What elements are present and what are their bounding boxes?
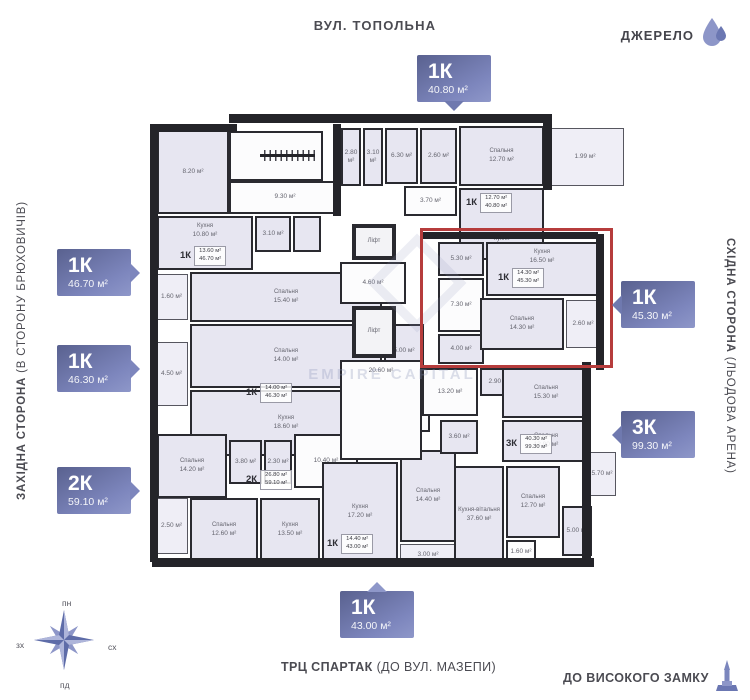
room-area-label: 3.60 м² xyxy=(448,433,469,441)
room-area-label: 3.70 м² xyxy=(420,197,441,205)
room-area-label: 4.50 м² xyxy=(161,370,182,378)
compass-rose: пн пд зх сх xyxy=(12,596,116,692)
room-name-label: Спальня xyxy=(274,348,298,356)
room-area-label: 2.50 м² xyxy=(161,522,182,530)
room-area-label: 3.80 м² xyxy=(235,458,256,466)
room: 2.60 м² xyxy=(420,128,457,184)
room-area-label: 5.00 м² xyxy=(393,347,414,355)
room-area-label: 37.60 м² xyxy=(467,515,492,523)
room: 3.10 м² xyxy=(255,216,291,252)
room-name-label: Кухня xyxy=(197,223,213,231)
room-area-label: 1.60 м² xyxy=(161,293,182,301)
room: 17.00 м² xyxy=(229,131,323,181)
compass-west-label: зх xyxy=(16,640,24,650)
badge-1k-45-30[interactable]: 1К 45.30 м² xyxy=(621,281,695,328)
room-area-label: 8.20 м² xyxy=(182,168,203,176)
room: 6.30 м² xyxy=(385,128,418,184)
room xyxy=(293,216,321,252)
room-спальня: Спальня12.60 м² xyxy=(190,498,258,562)
floorplan-page: ВУЛ. ТОПОЛЬНА ДЖЕРЕЛО ЗАХІДНА СТОРОНА (В… xyxy=(0,0,750,700)
apartment-rooms-label: 1К xyxy=(180,250,191,261)
room-area-label: 13.50 м² xyxy=(278,530,303,538)
room-area-label: 1.60 м² xyxy=(510,548,531,556)
room-area-label: 17.00 м² xyxy=(264,152,289,160)
room: 5.70 м² xyxy=(588,452,616,496)
room-area-label: 14.20 м² xyxy=(180,466,205,474)
room-area-label: 12.70 м² xyxy=(489,156,514,164)
apartment-areas-box: 40.30 м²99.30 м² xyxy=(520,434,552,454)
compass-south-label: пд xyxy=(60,680,70,690)
room-ліфт: Ліфт xyxy=(352,224,396,260)
room: 4.60 м² xyxy=(340,262,406,304)
room-area-label: 2.80 м² xyxy=(343,149,359,165)
room-area-label: 14.00 м² xyxy=(274,356,299,364)
apartment-tag[interactable]: 1К12.70 м²40.80 м² xyxy=(466,193,512,213)
apartment-rooms-label: 3К xyxy=(506,438,517,449)
badge-1k-46-70[interactable]: 1К 46.70 м² xyxy=(57,249,131,296)
room-area-label: 1.99 м² xyxy=(574,153,595,161)
room-area-label: 12.60 м² xyxy=(212,530,237,538)
room-area-label: 17.20 м² xyxy=(348,512,373,520)
room-area-label: 13.20 м² xyxy=(438,388,463,396)
room-ліфт: Ліфт xyxy=(352,306,396,358)
room-name-label: Кухня xyxy=(352,504,368,512)
compass-north-label: пн xyxy=(62,598,71,608)
room: 3.70 м² xyxy=(404,186,457,216)
room-area-label: 4.60 м² xyxy=(362,279,383,287)
room: 13.20 м² xyxy=(422,368,478,416)
room: 9.30 м² xyxy=(229,181,341,214)
apartment-areas-box: 26.80 м²59.10 м² xyxy=(260,470,292,490)
room: 2.50 м² xyxy=(155,498,188,554)
room: 4.50 м² xyxy=(155,342,188,406)
room-area-label: 15.40 м² xyxy=(274,297,299,305)
room-area-label: 9.30 м² xyxy=(274,193,295,201)
room-area-label: 20.60 м² xyxy=(369,367,394,375)
room-name-label: Спальня xyxy=(416,488,440,496)
wall-segment xyxy=(582,362,591,562)
apartment-rooms-label: 1К xyxy=(466,197,477,208)
selected-apartment-outline[interactable] xyxy=(420,228,613,368)
room-кухня-вітальня: Кухня-вітальня37.60 м² xyxy=(454,466,504,564)
apartment-tag[interactable]: 1К14.00 м²46.30 м² xyxy=(246,383,292,403)
room-кухня: Кухня13.50 м² xyxy=(260,498,320,562)
badge-1k-46-30[interactable]: 1К 46.30 м² xyxy=(57,345,131,392)
badge-1k-40-80[interactable]: 1К 40.80 м² xyxy=(417,55,491,102)
apartment-areas-box: 12.70 м²40.80 м² xyxy=(480,193,512,213)
wall-segment xyxy=(333,124,341,216)
room-area-label: 2.30 м² xyxy=(267,458,288,466)
room-name-label: Спальня xyxy=(180,458,204,466)
wall-segment xyxy=(229,114,545,123)
room-area-label: 18.60 м² xyxy=(274,423,299,431)
apartment-tag[interactable]: 2К26.80 м²59.10 м² xyxy=(246,470,292,490)
room-спальня: Спальня15.30 м² xyxy=(502,368,590,418)
wall-segment xyxy=(150,124,237,132)
wall-segment xyxy=(543,114,552,190)
apartment-areas-box: 14.00 м²46.30 м² xyxy=(260,383,292,403)
compass-east-label: сх xyxy=(108,642,117,652)
apartment-rooms-label: 2К xyxy=(246,474,257,485)
room-name-label: Спальня xyxy=(534,385,558,393)
room-спальня: Спальня12.70 м² xyxy=(506,466,560,538)
badge-3k-99-30[interactable]: 3К 99.30 м² xyxy=(621,411,695,458)
badge-1k-43-00[interactable]: 1К 43.00 м² xyxy=(340,591,414,638)
apartment-rooms-label: 1К xyxy=(327,538,338,549)
room: 1.60 м² xyxy=(155,274,188,320)
room: 3.60 м² xyxy=(440,420,478,454)
room-name-label: Спальня xyxy=(274,289,298,297)
room-name-label: Спальня xyxy=(489,148,513,156)
room-area-label: 14.40 м² xyxy=(416,496,441,504)
room-area-label: 12.70 м² xyxy=(521,502,546,510)
apartment-rooms-label: 1К xyxy=(246,387,257,398)
room-спальня: Спальня14.20 м² xyxy=(157,434,227,498)
badge-2k-59-10[interactable]: 2К 59.10 м² xyxy=(57,467,131,514)
apartment-areas-box: 14.40 м²43.00 м² xyxy=(341,534,373,554)
room-area-label: 10.80 м² xyxy=(193,231,218,239)
apartment-tag[interactable]: 1К13.60 м²46.70 м² xyxy=(180,246,226,266)
room: 3.10 м² xyxy=(363,128,383,186)
room-area-label: 2.60 м² xyxy=(428,152,449,160)
room-area-label: 15.30 м² xyxy=(534,393,559,401)
room-name-label: Кухня-вітальня xyxy=(458,507,500,515)
room-name-label: Кухня xyxy=(282,522,298,530)
room-area-label: 6.30 м² xyxy=(391,152,412,160)
room: 1.99 м² xyxy=(546,128,624,186)
wall-segment xyxy=(152,558,594,567)
room: 8.20 м² xyxy=(157,130,229,214)
room-спальня: Спальня12.70 м² xyxy=(459,126,544,186)
room-area-label: 3.10 м² xyxy=(262,230,283,238)
apartment-tag[interactable]: 3К40.30 м²99.30 м² xyxy=(506,434,552,454)
room-area-label: 5.70 м² xyxy=(591,470,612,478)
room: 20.60 м² xyxy=(340,360,422,460)
wall-segment xyxy=(150,126,158,562)
room-name-label: Ліфт xyxy=(368,238,381,246)
room-name-label: Спальня xyxy=(212,522,236,530)
room-спальня: Спальня14.40 м² xyxy=(400,450,456,542)
apartment-tag[interactable]: 1К14.40 м²43.00 м² xyxy=(327,534,373,554)
room-name-label: Кухня xyxy=(278,415,294,423)
apartment-areas-box: 13.60 м²46.70 м² xyxy=(194,246,226,266)
room-area-label: 3.10 м² xyxy=(365,149,381,165)
room-name-label: Спальня xyxy=(521,494,545,502)
compass-star-icon xyxy=(32,608,96,672)
room-name-label: Ліфт xyxy=(368,328,381,336)
room: 2.80 м² xyxy=(341,128,361,186)
